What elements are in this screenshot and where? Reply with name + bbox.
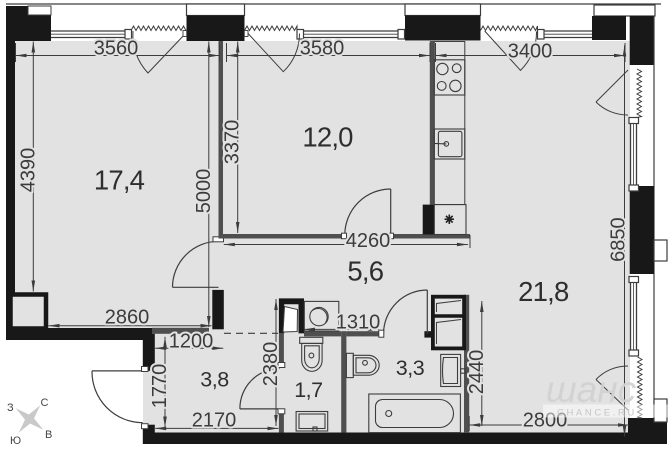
svg-text:1,7: 1,7: [294, 378, 322, 402]
svg-text:шанс: шанс: [546, 369, 637, 410]
svg-text:17,4: 17,4: [94, 165, 145, 196]
svg-text:2380: 2380: [260, 342, 282, 387]
svg-text:CHANCE.RU: CHANCE.RU: [557, 408, 637, 419]
svg-text:2170: 2170: [192, 410, 237, 432]
svg-text:3,8: 3,8: [200, 367, 229, 391]
svg-text:С: С: [41, 397, 49, 409]
svg-text:2440: 2440: [466, 350, 488, 395]
svg-text:З: З: [7, 402, 14, 414]
svg-text:Ю: Ю: [10, 435, 21, 447]
svg-text:12,0: 12,0: [302, 122, 353, 153]
svg-text:4390: 4390: [17, 148, 39, 193]
svg-text:3,3: 3,3: [396, 356, 425, 380]
svg-text:1200: 1200: [169, 330, 214, 352]
svg-text:5000: 5000: [193, 169, 215, 214]
svg-text:3400: 3400: [508, 40, 553, 62]
svg-text:5,6: 5,6: [347, 256, 383, 287]
svg-text:6850: 6850: [608, 217, 630, 262]
svg-text:3560: 3560: [94, 38, 139, 60]
svg-text:В: В: [45, 429, 52, 441]
svg-text:3370: 3370: [222, 120, 244, 165]
svg-text:4260: 4260: [346, 230, 391, 252]
svg-text:3580: 3580: [300, 38, 345, 60]
svg-text:21,8: 21,8: [518, 276, 569, 307]
svg-text:1310: 1310: [336, 312, 381, 334]
svg-text:2860: 2860: [105, 306, 150, 328]
svg-text:1770: 1770: [149, 364, 171, 409]
